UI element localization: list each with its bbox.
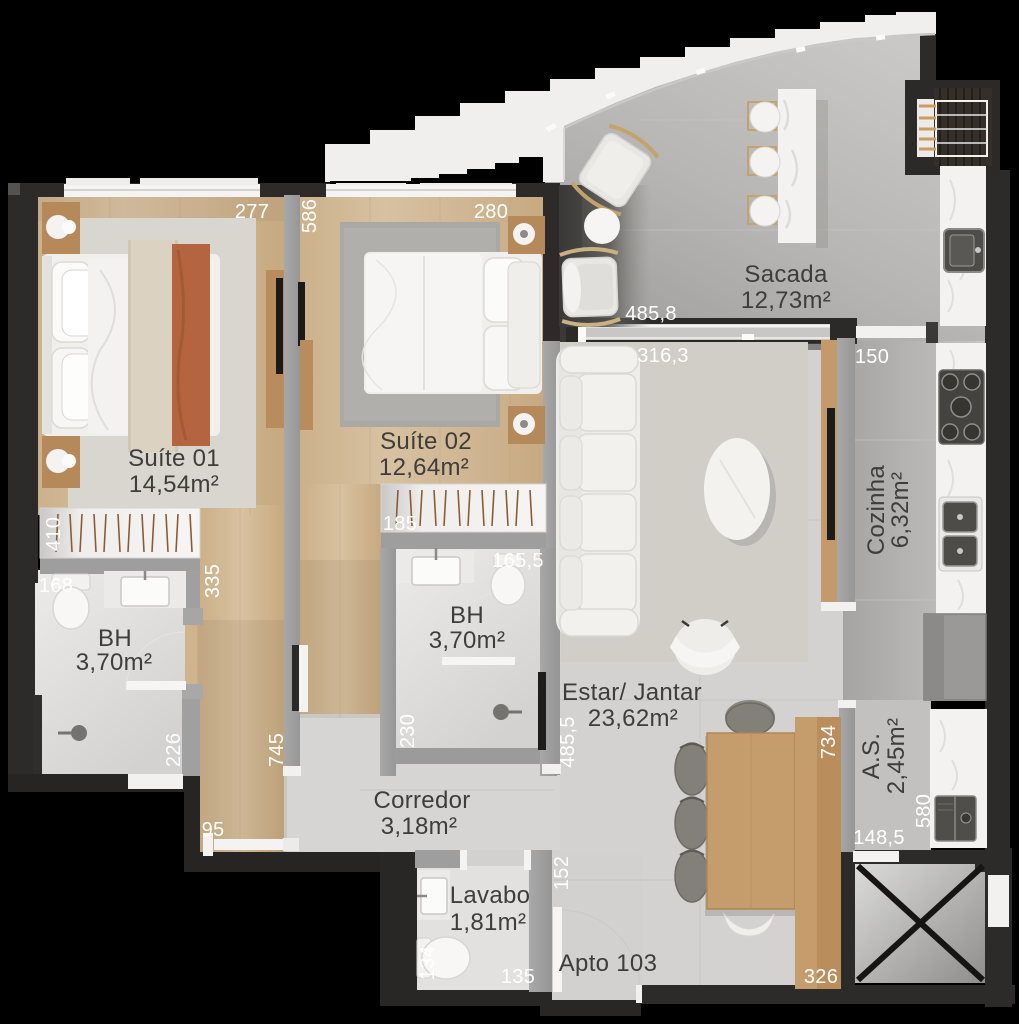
svg-text:745: 745 [266,733,288,767]
svg-text:168: 168 [39,575,73,597]
svg-text:316,3: 316,3 [637,345,689,367]
svg-text:12,64m²: 12,64m² [379,454,469,481]
svg-text:150: 150 [855,346,889,368]
svg-text:2,45m²: 2,45m² [883,718,910,795]
svg-text:Suíte 01: Suíte 01 [128,445,220,472]
svg-text:165,5: 165,5 [492,550,544,572]
svg-text:734: 734 [818,725,840,759]
svg-text:230: 230 [397,714,419,748]
svg-text:277: 277 [235,201,269,223]
svg-text:BH: BH [450,602,484,629]
svg-text:152: 152 [551,856,573,890]
svg-text:BH: BH [98,625,132,652]
svg-text:326: 326 [804,966,838,988]
svg-text:280: 280 [474,201,508,223]
svg-text:Corredor: Corredor [373,787,470,814]
svg-text:148,5: 148,5 [853,827,905,849]
svg-text:335: 335 [202,564,224,598]
svg-text:580: 580 [913,794,935,828]
svg-text:485,5: 485,5 [557,716,579,768]
svg-text:Lavabo: Lavabo [450,882,531,909]
svg-text:185: 185 [383,513,417,535]
svg-text:1,81m²: 1,81m² [450,909,527,936]
svg-text:3,18m²: 3,18m² [381,813,458,840]
svg-text:Apto 103: Apto 103 [559,950,657,977]
svg-text:3,70m²: 3,70m² [429,627,506,654]
svg-text:A.S.: A.S. [858,733,885,780]
svg-text:410: 410 [43,517,65,551]
svg-text:586: 586 [299,199,321,233]
svg-text:14,54m²: 14,54m² [129,471,219,498]
svg-text:485,8: 485,8 [625,303,677,325]
svg-text:134: 134 [417,946,439,980]
svg-text:Estar/ Jantar: Estar/ Jantar [562,679,702,706]
svg-text:Sacada: Sacada [744,261,828,288]
svg-text:135: 135 [501,966,535,988]
svg-text:3,70m²: 3,70m² [76,649,153,676]
svg-text:Cozinha: Cozinha [863,465,890,556]
svg-text:Suíte 02: Suíte 02 [380,428,472,455]
svg-text:23,62m²: 23,62m² [588,705,678,732]
svg-text:12,73m²: 12,73m² [741,287,831,314]
svg-text:226: 226 [163,733,185,767]
svg-text:95: 95 [202,819,225,841]
svg-text:6,32m²: 6,32m² [887,472,914,549]
